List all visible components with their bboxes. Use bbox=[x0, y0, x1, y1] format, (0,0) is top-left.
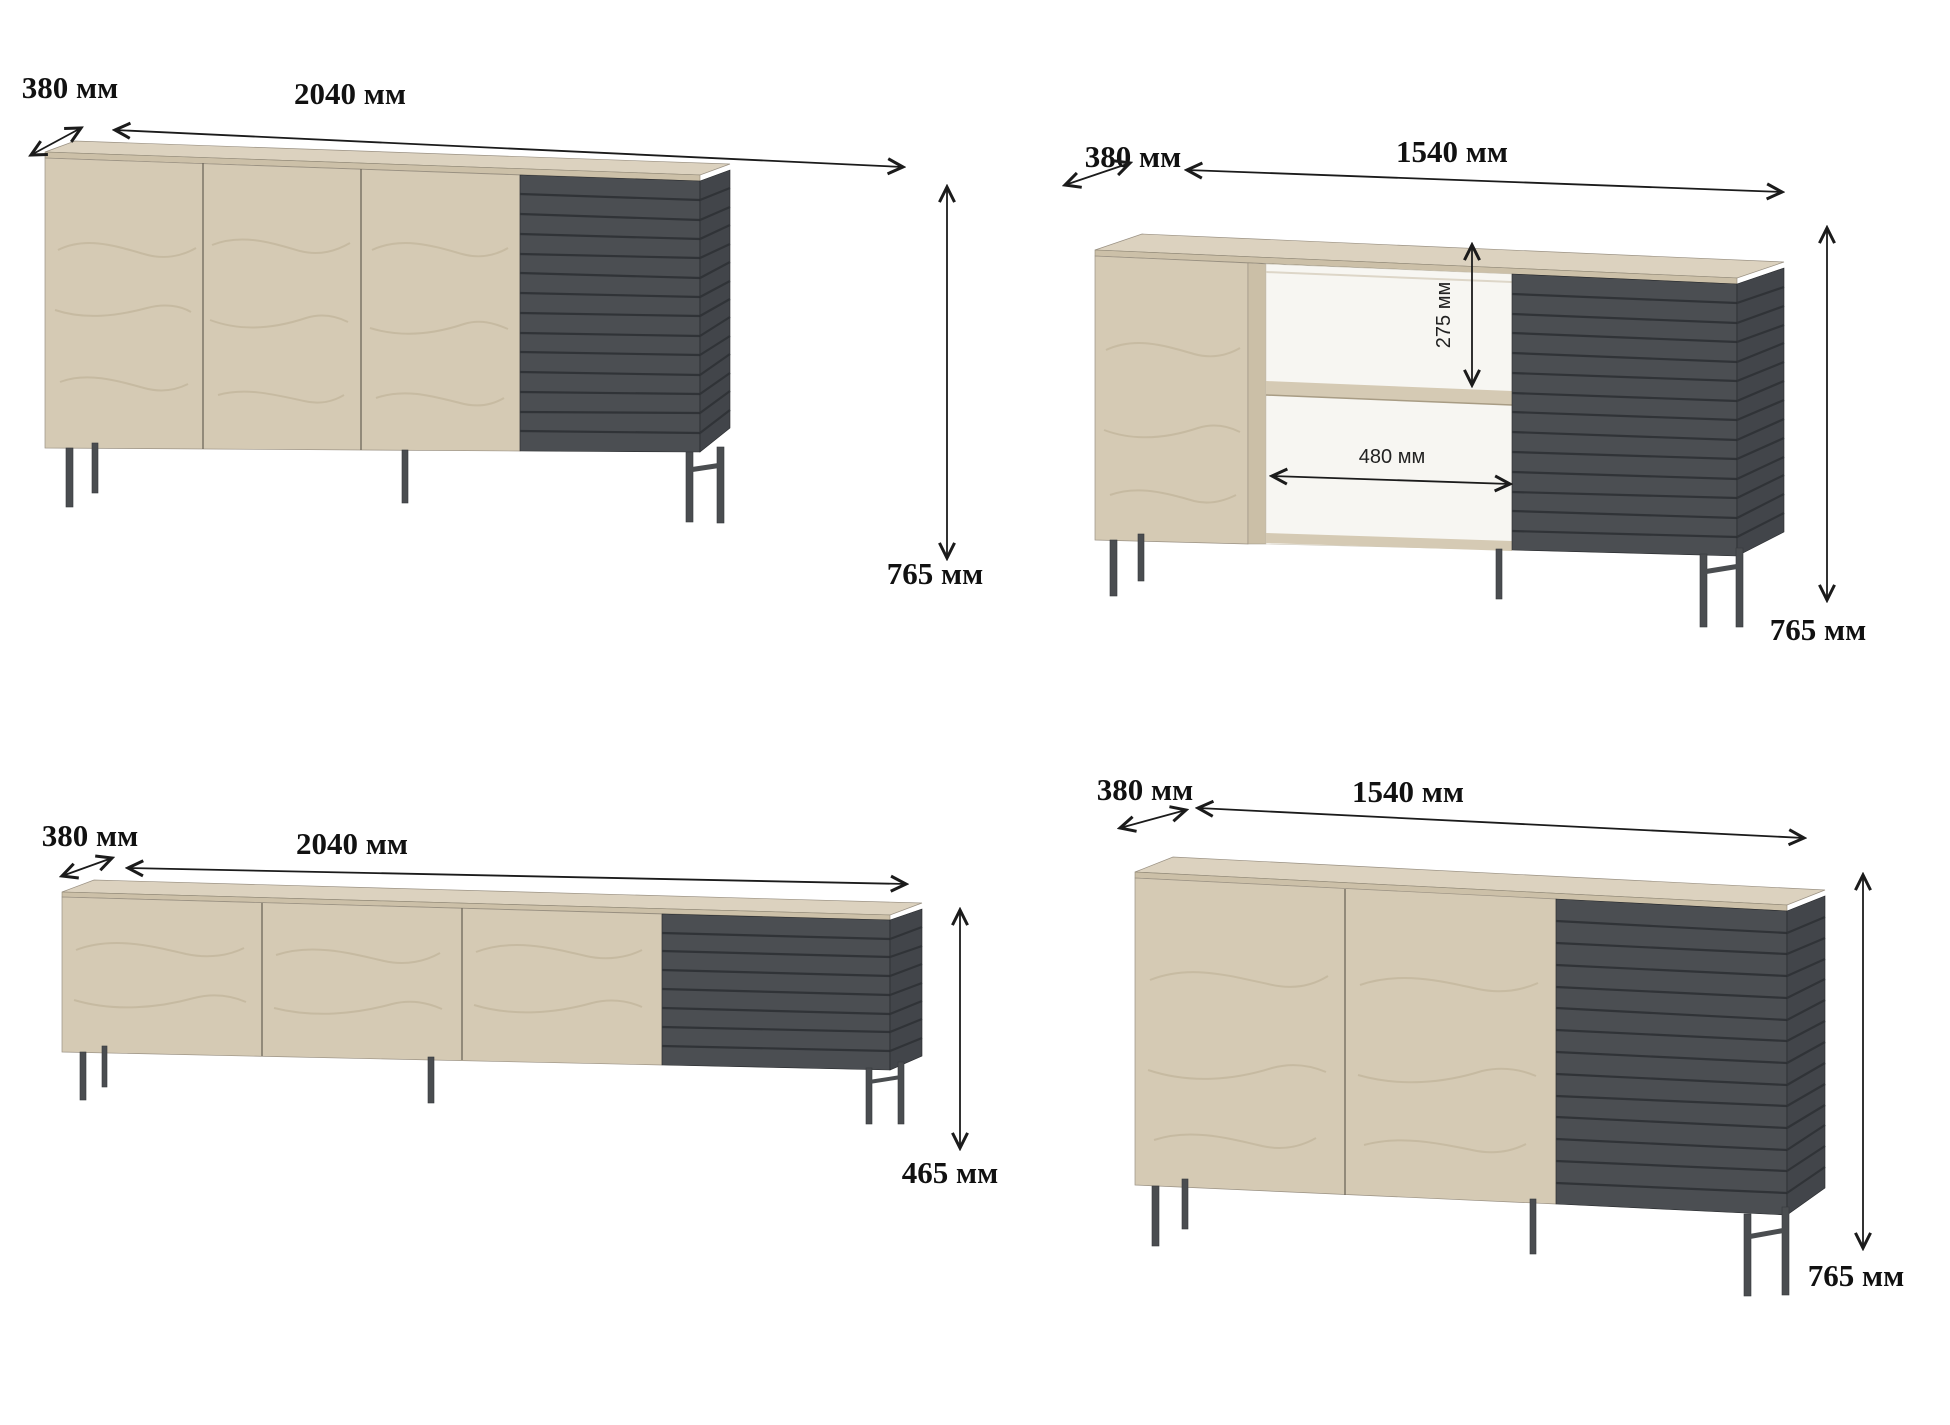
shelf-height-label: 275 мм bbox=[1433, 282, 1455, 348]
depth-label: 380 мм bbox=[42, 818, 138, 853]
furniture-dimensions-sheet: 380 мм 2040 мм 765 мм bbox=[0, 0, 1950, 1425]
width-label: 1540 мм bbox=[1396, 134, 1508, 169]
depth-arrow bbox=[1120, 810, 1186, 828]
height-label: 465 мм bbox=[902, 1155, 998, 1190]
height-label: 765 мм bbox=[887, 556, 983, 591]
side-panel bbox=[1737, 268, 1784, 556]
wood-doors-panel bbox=[45, 158, 520, 451]
diagram-sideboard-1540-open: 380 мм 1540 мм 765 мм 275 мм 480 мм bbox=[1065, 134, 1866, 647]
wood-doors-panel bbox=[62, 897, 662, 1065]
shelf-width-label: 480 мм bbox=[1359, 446, 1425, 468]
shelf-divider bbox=[1248, 263, 1266, 544]
diagram-canvas: 380 мм 2040 мм 765 мм bbox=[0, 0, 1950, 1425]
width-dimension-line bbox=[1187, 170, 1782, 192]
width-label: 2040 мм bbox=[294, 76, 406, 111]
height-label: 765 мм bbox=[1808, 1258, 1904, 1293]
open-shelf-back bbox=[1266, 264, 1512, 550]
depth-label: 380 мм bbox=[1085, 139, 1181, 174]
diagram-tv-stand-2040: 380 мм 2040 мм 465 мм bbox=[42, 818, 998, 1190]
height-label: 765 мм bbox=[1770, 612, 1866, 647]
width-dimension-line bbox=[1198, 808, 1804, 838]
legs bbox=[66, 443, 724, 523]
depth-label: 380 мм bbox=[22, 70, 118, 105]
depth-label: 380 мм bbox=[1097, 772, 1193, 807]
depth-arrow bbox=[62, 858, 112, 876]
diagram-sideboard-1540: 380 мм 1540 мм 765 мм bbox=[1097, 772, 1904, 1296]
wood-door bbox=[1095, 256, 1248, 544]
width-label: 1540 мм bbox=[1352, 774, 1464, 809]
width-dimension-line bbox=[128, 868, 906, 884]
diagram-sideboard-2040: 380 мм 2040 мм 765 мм bbox=[22, 70, 983, 591]
width-label: 2040 мм bbox=[296, 826, 408, 861]
